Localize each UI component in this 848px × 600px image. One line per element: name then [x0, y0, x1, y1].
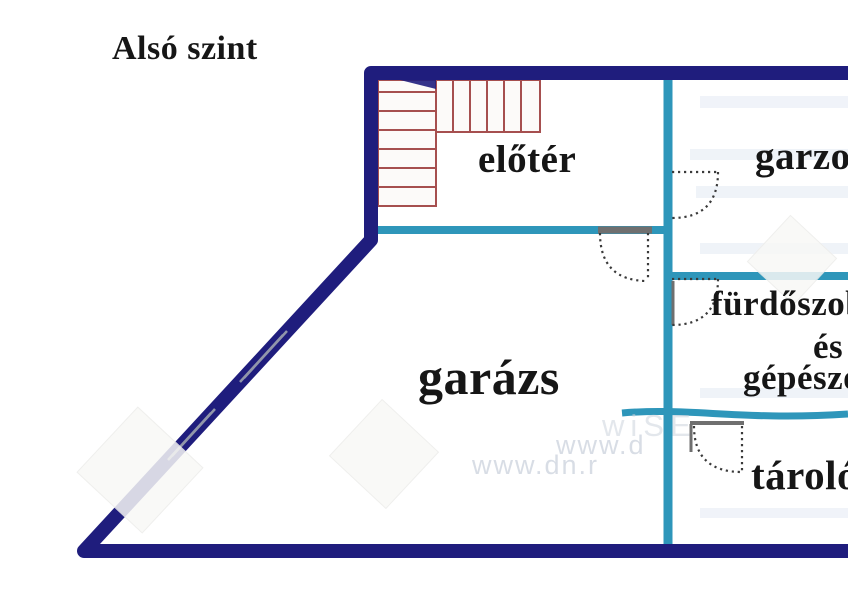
room-label-tarolo: tároló: [751, 455, 848, 496]
room-label-garzon: garzon: [755, 137, 848, 176]
room-label-eloter: előtér: [478, 140, 576, 179]
door-tarolo: [694, 426, 742, 472]
room-label-garazs: garázs: [418, 352, 560, 402]
page-title: Alsó szint: [112, 32, 258, 66]
room-label-furdoszoba-line1: fürdőszoba: [711, 286, 848, 321]
room-label-furdoszoba-line3: gépészet: [743, 360, 848, 395]
wall-furdo-tarolo: [622, 411, 848, 416]
floorplan-canvas: wiSE www.d www.dn.r Alsó szint előtér ga…: [0, 0, 848, 600]
door-eloter: [600, 233, 648, 281]
